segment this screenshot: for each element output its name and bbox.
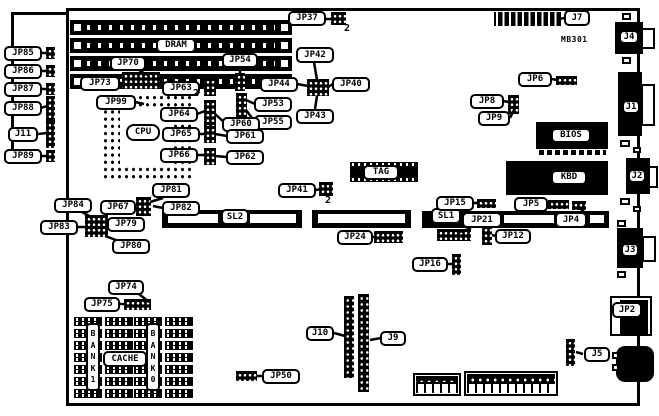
- label-jp4: JP4: [555, 212, 587, 228]
- label-j9: J9: [380, 331, 406, 346]
- vertical-label-char: B: [151, 328, 156, 340]
- label-jp42: JP42: [296, 47, 334, 63]
- vertical-label-char: K: [151, 363, 156, 375]
- label-jp64: JP64: [160, 107, 198, 122]
- label-kbd: KBD: [551, 170, 587, 185]
- label-bank1: BANK1: [86, 323, 100, 391]
- label-j1: J1: [622, 100, 640, 114]
- annotation-2: 2: [325, 195, 331, 206]
- label-jp83: JP83: [40, 220, 78, 235]
- label-jp81: JP81: [152, 183, 190, 198]
- label-jp21: JP21: [462, 212, 502, 228]
- label-jp75: JP75: [84, 297, 120, 312]
- label-sl2: SL2: [221, 209, 249, 225]
- label-j2: J2: [628, 169, 646, 183]
- label-bank0: BANK0: [146, 323, 160, 391]
- label-jp80: JP80: [112, 239, 150, 254]
- label-jp61: JP61: [226, 129, 264, 144]
- vertical-label-char: 1: [91, 374, 96, 386]
- label-jp88: JP88: [4, 101, 42, 116]
- label-jp85: JP85: [4, 46, 42, 61]
- label-jp15: JP15: [436, 196, 474, 211]
- label-jp8: JP8: [470, 94, 504, 109]
- label-dram: DRAM: [156, 38, 196, 53]
- label-jp37: JP37: [288, 11, 326, 26]
- label-jp99: JP99: [96, 95, 136, 110]
- label-bios: BIOS: [551, 128, 591, 143]
- label-jp89: JP89: [4, 149, 42, 164]
- label-jp50: JP50: [262, 369, 300, 384]
- label-jp84: JP84: [54, 198, 92, 213]
- label-jp24: JP24: [337, 230, 373, 245]
- label-j11: J11: [8, 127, 38, 142]
- label-jp6: JP6: [518, 72, 552, 87]
- annotation-2: 2: [193, 88, 199, 99]
- label-jp67: JP67: [100, 200, 136, 215]
- vertical-label-char: A: [91, 340, 96, 352]
- vertical-label-char: K: [91, 363, 96, 375]
- label-j10: J10: [306, 326, 334, 341]
- label-j3: J3: [621, 243, 639, 257]
- label-jp62: JP62: [226, 150, 264, 165]
- label-j5: J5: [584, 347, 610, 362]
- label-jp73: JP73: [80, 76, 120, 91]
- label-jp87: JP87: [4, 82, 42, 97]
- label-jp66: JP66: [160, 148, 198, 163]
- label-jp54: JP54: [222, 53, 258, 68]
- motherboard-diagram: JP85JP86JP87JP88J11JP89JP37J7J4DRAMJP70J…: [0, 0, 659, 416]
- label-tag: TAG: [363, 165, 399, 180]
- label-jp2: JP2: [612, 302, 642, 318]
- label-jp44: JP44: [260, 77, 298, 92]
- vertical-label-char: N: [151, 351, 156, 363]
- label-jp82: JP82: [162, 201, 200, 216]
- vertical-label-char: B: [91, 328, 96, 340]
- label-jp43: JP43: [296, 109, 334, 124]
- annotation-2: 2: [344, 23, 350, 34]
- label-cpu: CPU: [126, 124, 160, 141]
- annotation-mb301: MB301: [561, 35, 588, 44]
- label-jp65: JP65: [162, 127, 200, 142]
- label-cache: CACHE: [103, 351, 147, 367]
- label-jp86: JP86: [4, 64, 42, 79]
- label-jp40: JP40: [332, 77, 370, 92]
- label-jp16: JP16: [412, 257, 448, 272]
- label-j7: J7: [564, 10, 590, 26]
- label-jp70: JP70: [110, 56, 146, 71]
- label-jp12: JP12: [495, 229, 531, 244]
- vertical-label-char: A: [151, 340, 156, 352]
- label-j4: J4: [619, 30, 639, 44]
- vertical-label-char: 0: [151, 374, 156, 386]
- label-jp9: JP9: [478, 111, 510, 126]
- vertical-label-char: N: [91, 351, 96, 363]
- label-jp53: JP53: [254, 97, 292, 112]
- labels-layer: JP85JP86JP87JP88J11JP89JP37J7J4DRAMJP70J…: [0, 0, 659, 416]
- label-jp74: JP74: [108, 280, 144, 295]
- label-jp79: JP79: [107, 217, 145, 232]
- label-jp41: JP41: [278, 183, 316, 198]
- label-jp5: JP5: [514, 197, 548, 212]
